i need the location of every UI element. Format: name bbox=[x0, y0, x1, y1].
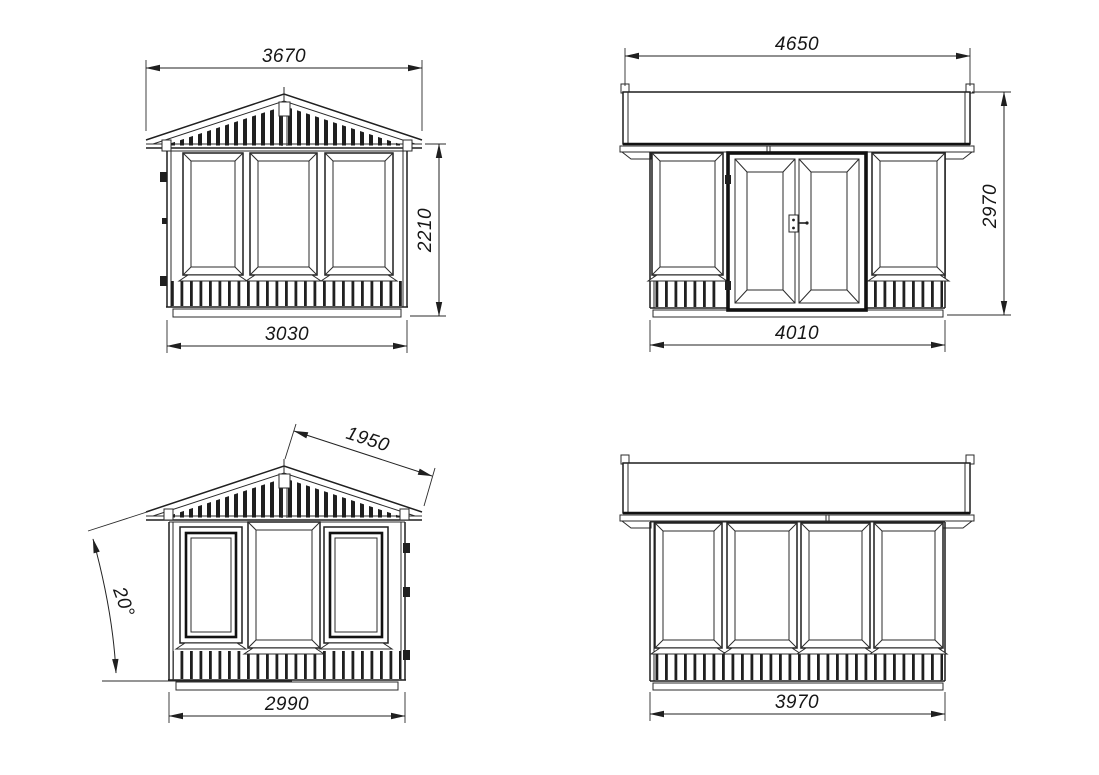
window bbox=[797, 523, 874, 654]
view-rear-side-elevation: 3970 bbox=[620, 455, 974, 721]
cabin-elevation-drawing: 3670 2210 3030 bbox=[0, 0, 1099, 775]
window-sill bbox=[651, 648, 726, 654]
window-sill bbox=[870, 648, 947, 654]
wall-rear-gable bbox=[164, 509, 410, 690]
view-entrance-side-elevation: 4650 2970 4010 bbox=[620, 34, 1011, 352]
plank-siding bbox=[652, 652, 943, 680]
window-sill bbox=[868, 275, 949, 281]
plank-siding bbox=[173, 651, 401, 679]
roof-band bbox=[620, 455, 974, 528]
dimension-roof-length: 4650 bbox=[625, 34, 970, 86]
hinge-mark bbox=[725, 281, 731, 290]
corner-post-cap bbox=[400, 509, 409, 520]
dim-label: 4010 bbox=[775, 323, 819, 344]
roof-gable bbox=[146, 459, 422, 520]
wall-front bbox=[160, 140, 412, 317]
eave-fascia bbox=[620, 515, 974, 521]
dimension-wall-height: 2210 bbox=[410, 144, 446, 316]
dim-label: 20° bbox=[108, 583, 138, 620]
window-sill bbox=[321, 275, 397, 281]
drawing-canvas: 3670 2210 3030 bbox=[0, 0, 1099, 775]
view-front-gable-elevation: 3670 2210 3030 bbox=[146, 46, 446, 353]
window bbox=[868, 153, 949, 281]
base-skid bbox=[176, 682, 398, 690]
base-skid bbox=[173, 309, 401, 317]
window bbox=[246, 153, 321, 281]
dim-label: 3670 bbox=[262, 46, 306, 67]
window bbox=[651, 523, 726, 654]
window bbox=[321, 153, 397, 281]
hinge-marks bbox=[160, 172, 167, 286]
dim-label: 4650 bbox=[775, 34, 819, 55]
window-sill bbox=[320, 643, 392, 649]
dim-label: 3030 bbox=[265, 324, 309, 345]
window-sill bbox=[723, 648, 801, 654]
eave-fascia bbox=[620, 146, 974, 152]
dim-label: 2210 bbox=[415, 208, 436, 253]
eave-end bbox=[943, 521, 972, 528]
dim-label: 2970 bbox=[980, 184, 1001, 229]
base-skid bbox=[653, 683, 943, 690]
dim-label: 3970 bbox=[775, 692, 819, 713]
plank-siding bbox=[874, 281, 943, 307]
window-sill bbox=[797, 648, 874, 654]
plank-siding bbox=[171, 281, 403, 306]
plank-siding bbox=[655, 281, 721, 307]
wall-rear-side bbox=[650, 522, 947, 690]
roof-gable bbox=[146, 87, 422, 148]
window bbox=[870, 523, 947, 654]
window-sill bbox=[179, 275, 247, 281]
dimension-wall-width: 3030 bbox=[167, 320, 407, 353]
wall-entrance bbox=[648, 152, 949, 317]
window-sill bbox=[244, 648, 324, 654]
corner-post-cap bbox=[164, 509, 173, 520]
dim-label: 1950 bbox=[343, 423, 392, 457]
eave-end bbox=[622, 152, 651, 159]
eave-end bbox=[943, 152, 972, 159]
window-sill bbox=[246, 275, 321, 281]
window bbox=[723, 523, 801, 654]
eave-end bbox=[622, 521, 651, 528]
casement-window bbox=[320, 527, 392, 649]
casement-window bbox=[176, 527, 246, 649]
window bbox=[244, 522, 324, 654]
window-sill bbox=[176, 643, 246, 649]
double-door bbox=[725, 153, 866, 310]
dimension-wall-length: 3970 bbox=[650, 692, 945, 721]
window bbox=[648, 153, 727, 281]
roof-band bbox=[620, 84, 974, 159]
dimension-wall-width: 2990 bbox=[169, 692, 405, 723]
window-sill bbox=[648, 275, 727, 281]
hinge-mark bbox=[725, 175, 731, 184]
hinge-marks bbox=[403, 543, 410, 660]
view-rear-gable-elevation: 1950 20° 2990 bbox=[88, 423, 435, 723]
dim-label: 2990 bbox=[264, 694, 309, 715]
corner-post-cap bbox=[162, 140, 171, 151]
window bbox=[179, 153, 247, 281]
corner-post-cap bbox=[403, 140, 412, 151]
dimension-wall-length: 4010 bbox=[650, 320, 945, 352]
